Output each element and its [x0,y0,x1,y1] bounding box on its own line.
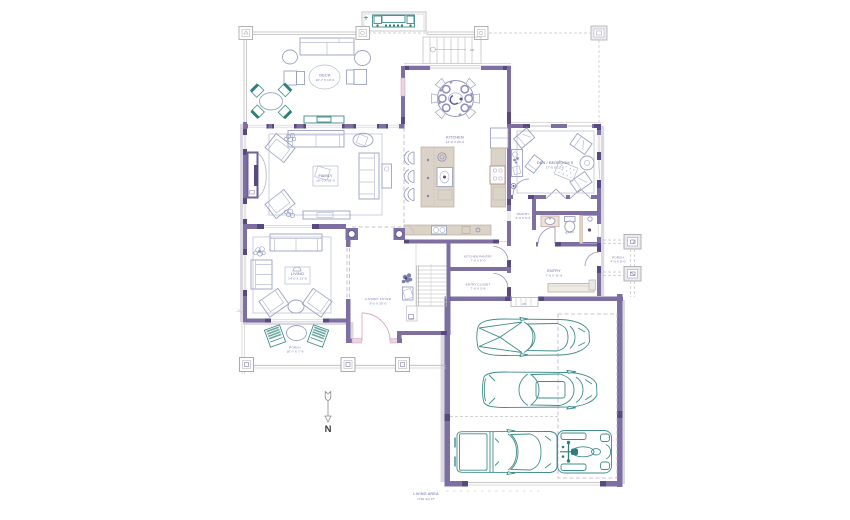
svg-text:FAMILY: FAMILY [318,174,332,178]
svg-text:7'-0 X 3'-6: 7'-0 X 3'-6 [470,287,485,291]
svg-text:20'-7 X 10'-0: 20'-7 X 10'-0 [316,78,335,82]
svg-text:UP: UP [470,48,475,52]
svg-text:UP: UP [522,302,527,306]
svg-text:14'-0 X 13'-6: 14'-0 X 13'-6 [288,277,307,281]
svg-text:17'-0 X 13'-6: 17'-0 X 13'-6 [546,166,565,170]
svg-text:DECK: DECK [319,74,330,78]
svg-text:LIVING AREA: LIVING AREA [413,492,439,496]
svg-text:3'-6 X 6'-6: 3'-6 X 6'-6 [515,216,530,220]
svg-text:LIVING: LIVING [291,272,304,276]
svg-text:DEN / BEDROOM 5: DEN / BEDROOM 5 [537,161,573,165]
svg-text:UP: UP [409,317,414,321]
svg-text:2-STORY FOYER: 2-STORY FOYER [365,297,392,301]
svg-text:1762 SQ FT: 1762 SQ FT [417,497,435,501]
svg-text:KITCHEN: KITCHEN [446,136,464,140]
svg-text:16'-0 X 16'-0: 16'-0 X 16'-0 [316,179,335,183]
svg-text:N: N [325,424,332,435]
svg-text:7'-0 X 6'-0: 7'-0 X 6'-0 [470,259,485,263]
svg-text:20'-7 X 7'-9: 20'-7 X 7'-9 [287,350,304,354]
svg-text:8'-0 X 20'-0: 8'-0 X 20'-0 [370,302,387,306]
svg-text:7'-6 X 11'-6: 7'-6 X 11'-6 [546,274,563,278]
svg-text:ENTRY: ENTRY [547,269,561,273]
svg-text:BATH: BATH [565,231,573,235]
svg-text:12'-0 X 26'-0: 12'-0 X 26'-0 [446,140,465,144]
svg-text:4'-0 X 8'-0: 4'-0 X 8'-0 [610,260,625,264]
